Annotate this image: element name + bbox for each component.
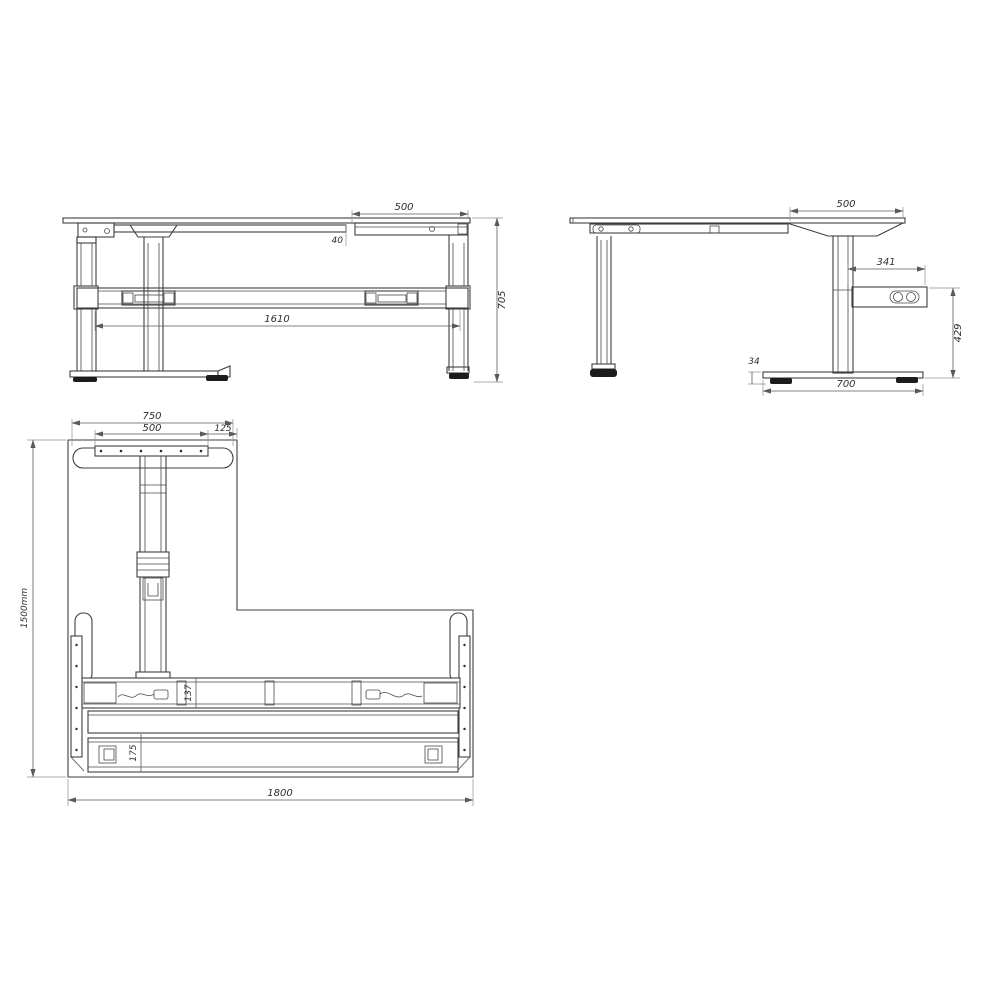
- front-crossbar: [77, 288, 468, 308]
- dim-label-front-top-segment: 500: [394, 202, 413, 213]
- front-foot-pad: [449, 373, 469, 379]
- dim-label-side-top-segment: 500: [836, 199, 855, 210]
- plan-right-strip: [459, 636, 470, 757]
- front-right-foot: [447, 367, 469, 379]
- plan-column-clip: [143, 578, 163, 600]
- dim-label-plan-support-width: 750: [142, 411, 161, 422]
- dim-label-side-foot-height: 34: [748, 357, 760, 367]
- side-foot-pad: [896, 377, 918, 383]
- front-left-bracket: [78, 223, 114, 237]
- dim-label-plan-bracket-width: 500: [142, 423, 161, 434]
- dim-label-plan-edge-offset: 125: [214, 424, 231, 434]
- front-tabletop: [63, 218, 470, 223]
- side-rail-clip: [710, 226, 719, 233]
- side-column: [833, 236, 853, 373]
- side-rail-screw-icon: [599, 227, 603, 231]
- plan-column: [136, 456, 170, 684]
- plan-left-strip: [71, 636, 82, 757]
- controller-button-icon: [907, 293, 916, 302]
- front-left-foot: [70, 366, 230, 382]
- front-bracket-screw-icon: [105, 229, 110, 234]
- dim-label-plan-beam-depth: 137: [184, 684, 194, 701]
- front-right-rail: [355, 223, 468, 235]
- side-foot-pad: [590, 369, 617, 377]
- side-rail-screw-icon: [629, 227, 633, 231]
- side-column-mount: [787, 223, 903, 236]
- dim-label-side-controller-width: 341: [876, 257, 895, 268]
- dim-label-plan-depth: 1500mm: [20, 588, 30, 629]
- dim-label-plan-rail-depth: 175: [129, 744, 139, 761]
- plan-gearbox: [137, 552, 169, 577]
- side-controller: [852, 287, 927, 307]
- drawing-svg: 500 40 1610 705: [0, 0, 1000, 1000]
- front-long-rail: [114, 225, 346, 232]
- dim-label-side-foot-length: 700: [836, 379, 855, 390]
- plan-bottom-rails: [88, 711, 458, 772]
- front-foot-pad: [73, 377, 97, 382]
- side-tabletop: [570, 218, 905, 223]
- technical-drawing-canvas: 500 40 1610 705: [0, 0, 1000, 1000]
- front-middle-mount: [130, 225, 177, 237]
- dim-label-front-gap: 40: [332, 236, 344, 246]
- plan-view: 137 175 750 500 125: [20, 411, 473, 806]
- side-far-leg: [590, 236, 617, 377]
- front-view: 500 40 1610 705: [63, 202, 508, 382]
- side-view: 500 341 429 34 700: [570, 199, 964, 396]
- dim-label-front-height: 705: [497, 290, 508, 309]
- front-bracket-screw-icon: [83, 228, 87, 232]
- dim-label-front-span: 1610: [264, 314, 289, 325]
- dim-label-side-controller-drop: 429: [953, 323, 964, 342]
- dim-label-plan-width: 1800: [267, 788, 292, 799]
- front-right-leg: [446, 235, 470, 371]
- plan-top-bracket: [95, 446, 208, 456]
- plan-crossbeam: [82, 678, 460, 708]
- side-foot-pad: [770, 378, 792, 384]
- controller-button-icon: [894, 293, 903, 302]
- front-left-leg: [74, 237, 98, 371]
- front-foot-pad: [206, 375, 228, 381]
